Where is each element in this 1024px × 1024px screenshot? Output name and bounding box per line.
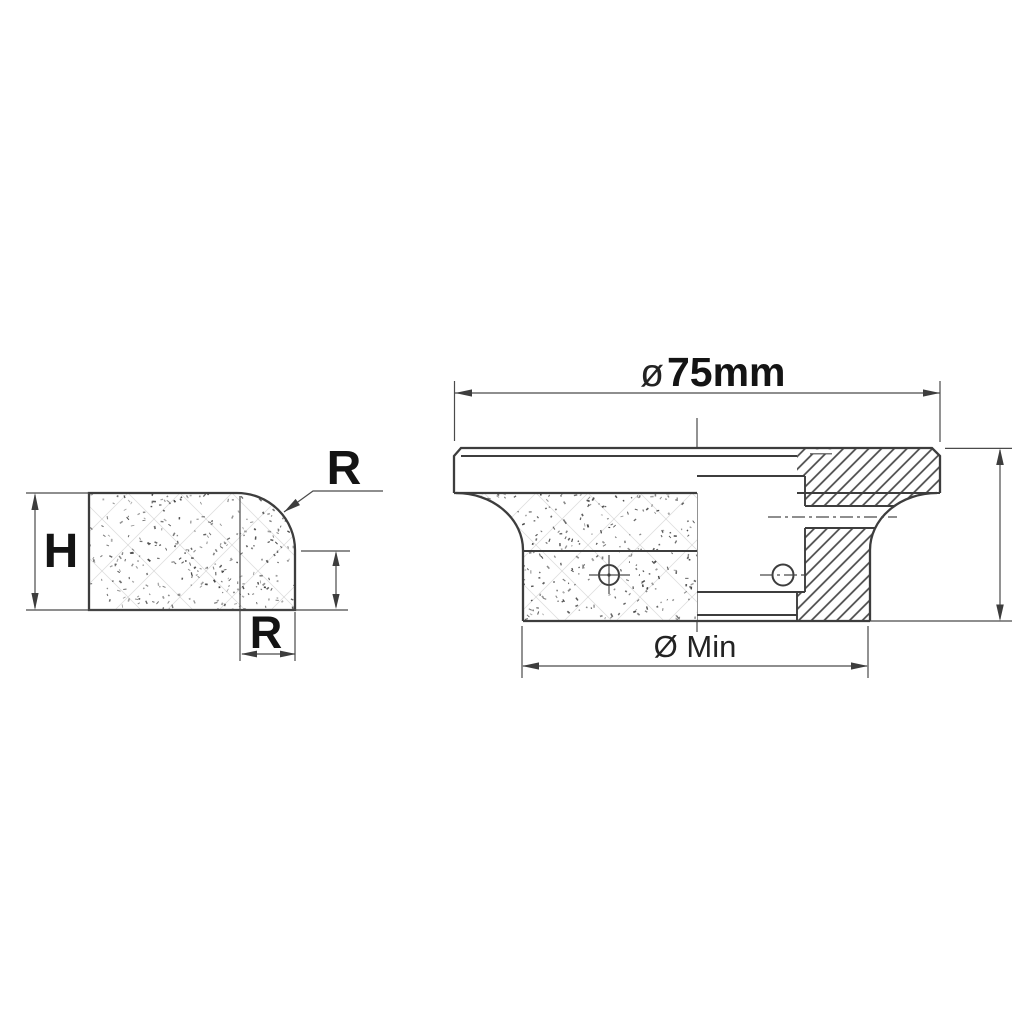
h-arrow-down — [31, 593, 38, 610]
radius-label-top: R — [327, 442, 362, 495]
dia75-arrow-left — [455, 389, 472, 396]
technical-drawing: H R R ø 75mm — [0, 0, 1024, 1024]
diameter-symbol: ø — [640, 352, 664, 395]
hub-lower-section-hatch — [797, 528, 875, 621]
profile-shape — [89, 493, 295, 610]
diamin-arrow-right — [851, 662, 868, 669]
height-arrow-up — [996, 448, 1004, 465]
h-arrow-up — [31, 493, 38, 510]
radius-leader-arrow — [284, 499, 300, 512]
diameter-value: 75mm — [667, 349, 786, 395]
radius-height-arrow-down — [332, 594, 339, 609]
r-arrow-right — [280, 651, 296, 658]
height-label: H — [44, 525, 79, 578]
profile-detail-view: H R R — [0, 442, 505, 661]
drawing-canvas: H R R ø 75mm — [0, 0, 1024, 1024]
dia75-arrow-right — [923, 389, 940, 396]
screw-hole-center-dot — [607, 573, 610, 576]
height-arrow-down — [996, 605, 1004, 622]
min-diameter-label: Ø Min — [654, 629, 737, 664]
diamin-arrow-left — [522, 662, 539, 669]
flange-top-notch — [810, 449, 832, 453]
radius-label-bottom: R — [250, 607, 283, 658]
body-right-cove-curve — [870, 493, 937, 621]
flange-section-hatch — [797, 448, 940, 493]
radius-height-arrow-up — [332, 551, 339, 566]
wheel-section-view: ø 75mm — [200, 349, 1012, 678]
